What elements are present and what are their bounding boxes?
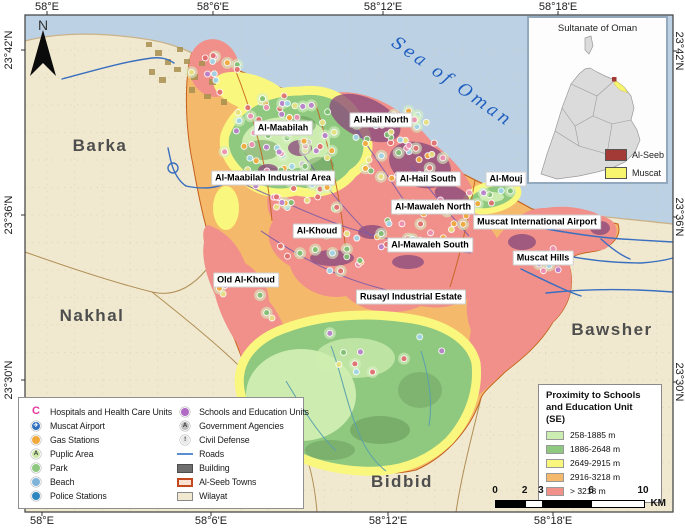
poi-icon <box>353 369 359 375</box>
poi-icon <box>378 153 384 159</box>
poi-icon <box>475 201 481 207</box>
poi-icon <box>222 149 228 155</box>
inset-legend-label: Al-Seeb <box>632 150 664 160</box>
town-label: Old Al-Khoud <box>213 273 279 288</box>
poi-icon <box>273 194 279 200</box>
coordinate-label-top: 58°E <box>35 1 59 13</box>
poi-icon <box>429 151 435 157</box>
proximity-class: 2649-2915 m <box>546 458 655 468</box>
proximity-swatch <box>546 473 564 482</box>
poi-icon <box>341 349 347 355</box>
oman-inset-map: Sultanate of Oman Al-SeebMuscat <box>527 16 668 184</box>
inset-legend-swatch <box>605 167 627 179</box>
park-icon <box>28 463 44 473</box>
proximity-class-label: 2916-3218 m <box>570 472 620 482</box>
poi-icon <box>277 243 283 249</box>
poi-icon <box>431 140 437 146</box>
coordinate-label-bottom: 58°6'E <box>195 515 227 527</box>
poi-icon <box>388 129 394 135</box>
poi-icon <box>327 330 333 336</box>
legend-item: Police Stations <box>28 490 172 503</box>
legend-item: Roads <box>177 447 309 460</box>
poi-icon <box>213 77 219 83</box>
poi-icon <box>354 235 360 241</box>
poi-icon <box>466 190 472 196</box>
poi-icon <box>413 145 419 151</box>
poi-icon <box>241 143 247 149</box>
legend-item: Beach <box>28 476 172 489</box>
proximity-class: 2916-3218 m <box>546 472 655 482</box>
legend-item: APuplic Area <box>28 447 172 460</box>
legend-column-left: CHospitals and Health Care Units✈Muscat … <box>28 405 172 503</box>
legend-item: ✈Muscat Airport <box>28 419 172 432</box>
poi-icon <box>304 197 310 203</box>
poi-icon <box>399 221 405 227</box>
poi-icon <box>248 113 254 119</box>
proximity-class: 1886-2648 m <box>546 444 655 454</box>
legend-item-label: Roads <box>199 449 224 459</box>
poi-icon <box>247 155 253 161</box>
inset-legend-item: Al-Seeb <box>605 149 664 161</box>
poi-icon <box>439 348 445 354</box>
poi-icon <box>336 361 342 367</box>
poi-icon <box>498 188 504 194</box>
poi-icon <box>366 157 372 163</box>
coordinate-label-right: 23°42'N <box>673 32 685 71</box>
gas-station-icon <box>28 435 44 445</box>
oman-country-shape <box>541 68 640 179</box>
poi-icon <box>284 100 290 106</box>
poi-icon <box>440 155 446 161</box>
alseeb-swatch <box>177 478 193 487</box>
poi-icon <box>344 231 350 237</box>
legend-item: CHospitals and Health Care Units <box>28 405 172 418</box>
poi-icon <box>386 221 392 227</box>
poi-icon <box>264 310 270 316</box>
poi-icon <box>555 267 561 273</box>
legend-item-label: Police Stations <box>50 491 107 501</box>
town-label: Al-Mawaleh North <box>391 200 475 215</box>
poi-icon <box>378 231 384 237</box>
poi-icon <box>334 204 340 210</box>
scale-bar-number: 0 <box>492 485 498 496</box>
poi-icon <box>397 137 403 143</box>
proximity-swatch <box>546 445 564 454</box>
legend-item: Wilayat <box>177 490 309 503</box>
proximity-class-label: 258-1885 m <box>570 430 615 440</box>
legend-item: Building <box>177 462 309 475</box>
town-label: Al-Mouj <box>486 172 527 187</box>
poi-icon <box>233 128 239 134</box>
scale-bar-segment <box>526 501 542 507</box>
poi-icon <box>451 221 457 227</box>
proximity-class-label: 1886-2648 m <box>570 444 620 454</box>
region-label: Bidbid <box>371 472 433 492</box>
poi-icon <box>338 268 344 274</box>
beach-icon <box>28 477 44 487</box>
coordinate-label-top: 58°12'E <box>364 1 402 13</box>
coordinate-label-top: 58°18'E <box>539 1 577 13</box>
legend-item-label: Park <box>50 463 68 473</box>
scale-bar-segment <box>592 501 644 507</box>
scale-bar-number: 10 <box>637 485 648 496</box>
town-label: Al-Hail North <box>350 113 413 128</box>
poi-icon <box>322 133 328 139</box>
proximity-swatch <box>546 431 564 440</box>
scale-bar-track <box>495 500 645 508</box>
town-label: Muscat International Airport <box>473 215 601 230</box>
poi-icon <box>357 258 363 264</box>
building-swatch <box>177 464 193 473</box>
north-label: N <box>38 17 48 33</box>
coordinate-label-left: 23°36'N <box>3 196 15 235</box>
poi-icon <box>327 268 333 274</box>
civil-defense-icon: ! <box>177 435 193 445</box>
poi-icon <box>202 55 208 61</box>
hospital-icon: C <box>28 406 44 417</box>
poi-icon <box>481 190 487 196</box>
inset-title: Sultanate of Oman <box>558 23 637 34</box>
coordinate-label-right: 23°30'N <box>673 363 685 402</box>
poi-icon <box>288 200 294 206</box>
inset-legend-label: Muscat <box>632 168 661 178</box>
inset-legend-swatch <box>605 149 627 161</box>
poi-icon <box>417 334 423 340</box>
poi-icon <box>263 144 269 150</box>
poi-icon <box>284 253 290 259</box>
poi-icon <box>460 221 466 227</box>
poi-icon <box>315 194 321 200</box>
town-label: Rusayl Industrial Estate <box>356 290 466 305</box>
legend-item-label: Beach <box>50 477 74 487</box>
poi-icon <box>389 175 395 181</box>
poi-icon <box>507 188 513 194</box>
poi-icon <box>234 66 240 72</box>
poi-icon <box>353 134 359 140</box>
proximity-title-line2: and Education Unit <box>546 402 655 414</box>
poi-icon <box>396 150 402 156</box>
legend-item: !Civil Defense <box>177 433 309 446</box>
police-station-icon <box>28 491 44 501</box>
wilayat-swatch <box>177 492 193 501</box>
town-label: Al-Maabilah <box>254 121 313 136</box>
legend-item-label: Al-Seeb Towns <box>199 477 256 487</box>
legend-item: Schools and Education Units <box>177 405 309 418</box>
poi-icon <box>362 141 368 147</box>
poi-icon <box>540 268 546 274</box>
scale-bar-number: 2 <box>522 485 528 496</box>
poi-icon <box>279 111 285 117</box>
poi-icon <box>269 315 275 321</box>
coordinate-label-bottom: 58°18'E <box>534 515 572 527</box>
scale-bar: KM 023610 <box>486 485 668 513</box>
poi-icon <box>249 142 255 148</box>
legend-item: Park <box>28 462 172 475</box>
poi-icon <box>319 120 325 126</box>
proximity-class: 258-1885 m <box>546 430 655 440</box>
poi-icon <box>418 221 424 227</box>
poi-icon <box>260 96 266 102</box>
poi-icon <box>276 149 282 155</box>
poi-icon <box>211 71 217 77</box>
scale-bar-unit: KM <box>650 498 666 509</box>
poi-icon <box>291 186 297 192</box>
legend-item-label: Muscat Airport <box>50 421 105 431</box>
legend-item-label: Building <box>199 463 230 473</box>
poi-icon <box>317 144 323 150</box>
poi-icon <box>488 200 494 206</box>
poi-icon <box>205 71 211 77</box>
poi-icon <box>312 247 318 253</box>
legend-column-right: Schools and Education UnitsAGovernment A… <box>177 405 309 503</box>
legend-item-label: Puplic Area <box>50 449 93 459</box>
coordinate-label-bottom: 58°E <box>30 515 54 527</box>
public-area-icon: A <box>28 449 44 459</box>
scale-bar-number: 6 <box>588 485 594 496</box>
legend-item: Al-Seeb Towns <box>177 476 309 489</box>
poi-icon <box>329 250 335 256</box>
coordinate-label-top: 58°6'E <box>197 1 229 13</box>
region-label: Nakhal <box>60 306 125 326</box>
town-label: Al-Khoud <box>293 224 342 239</box>
poi-icon <box>416 157 422 163</box>
poi-icon <box>357 349 363 355</box>
poi-icon <box>329 148 335 154</box>
poi-icon <box>253 158 259 164</box>
legend-item-label: Schools and Education Units <box>199 407 309 417</box>
poi-icon <box>370 369 376 375</box>
poi-icon <box>325 109 331 115</box>
poi-icon <box>302 163 308 169</box>
roads-line <box>177 453 193 455</box>
town-label: Al-Hail South <box>396 172 461 187</box>
poi-icon <box>210 53 216 59</box>
poi-icon <box>279 200 285 206</box>
legend-item-label: Hospitals and Health Care Units <box>50 407 172 417</box>
airport-icon: ✈ <box>28 421 44 431</box>
poi-icon <box>273 204 279 210</box>
musandam-shape <box>585 36 593 54</box>
proximity-class-label: 2649-2915 m <box>570 458 620 468</box>
poi-icon <box>210 58 216 64</box>
poi-icon <box>448 227 454 233</box>
poi-icon <box>344 246 350 252</box>
proximity-title-line1: Proximity to Schools <box>546 390 655 402</box>
coordinate-label-right: 23°36'N <box>673 198 685 237</box>
poi-icon <box>308 102 314 108</box>
inset-legend-item: Muscat <box>605 167 661 179</box>
poi-icon <box>406 142 412 148</box>
region-label: Barka <box>73 136 128 156</box>
legend-item-label: Gas Stations <box>50 435 99 445</box>
poi-icon <box>423 119 429 125</box>
poi-icon <box>289 163 295 169</box>
poi-icon <box>263 104 269 110</box>
scale-bar-segment <box>542 501 592 507</box>
region-label: Bawsher <box>571 320 652 340</box>
poi-icon <box>301 138 307 144</box>
coordinate-label-left: 23°42'N <box>3 31 15 70</box>
legend-item: AGovernment Agencies <box>177 419 309 432</box>
school-icon <box>177 407 193 417</box>
legend-item-label: Civil Defense <box>199 435 250 445</box>
poi-icon <box>300 103 306 109</box>
poi-icon <box>331 129 337 135</box>
alseeb-highlight <box>612 77 617 82</box>
town-label: Al-Maabilah Industrial Area <box>211 171 335 186</box>
poi-icon <box>235 109 241 115</box>
legend-item: Gas Stations <box>28 433 172 446</box>
scale-bar-number: 3 <box>538 485 544 496</box>
poi-icon <box>401 356 407 362</box>
poi-icon <box>224 60 230 66</box>
proximity-title-line3: (SE) <box>546 414 655 426</box>
poi-icon <box>257 292 263 298</box>
map-legend: CHospitals and Health Care Units✈Muscat … <box>18 397 304 509</box>
town-label: Al-Mawaleh South <box>387 238 473 253</box>
government-icon: A <box>177 421 193 431</box>
scale-bar-segment <box>496 501 526 507</box>
poi-icon <box>236 118 242 124</box>
map-figure: N Sea of Oman 58°E58°6'E58°12'E58°18'E58… <box>0 0 685 530</box>
poi-icon <box>428 230 434 236</box>
legend-item-label: Government Agencies <box>199 421 284 431</box>
town-label: Muscat Hills <box>513 251 574 266</box>
poi-icon <box>294 114 300 120</box>
poi-icon <box>245 105 251 111</box>
poi-icon <box>352 361 358 367</box>
coordinate-label-left: 23°30'N <box>3 361 15 400</box>
poi-icon <box>297 250 303 256</box>
poi-icon <box>189 69 195 75</box>
poi-icon <box>378 174 384 180</box>
proximity-swatch <box>546 459 564 468</box>
poi-icon <box>217 89 223 95</box>
legend-item-label: Wilayat <box>199 491 227 501</box>
poi-icon <box>368 168 374 174</box>
coordinate-label-bottom: 58°12'E <box>369 515 407 527</box>
poi-icon <box>427 165 433 171</box>
